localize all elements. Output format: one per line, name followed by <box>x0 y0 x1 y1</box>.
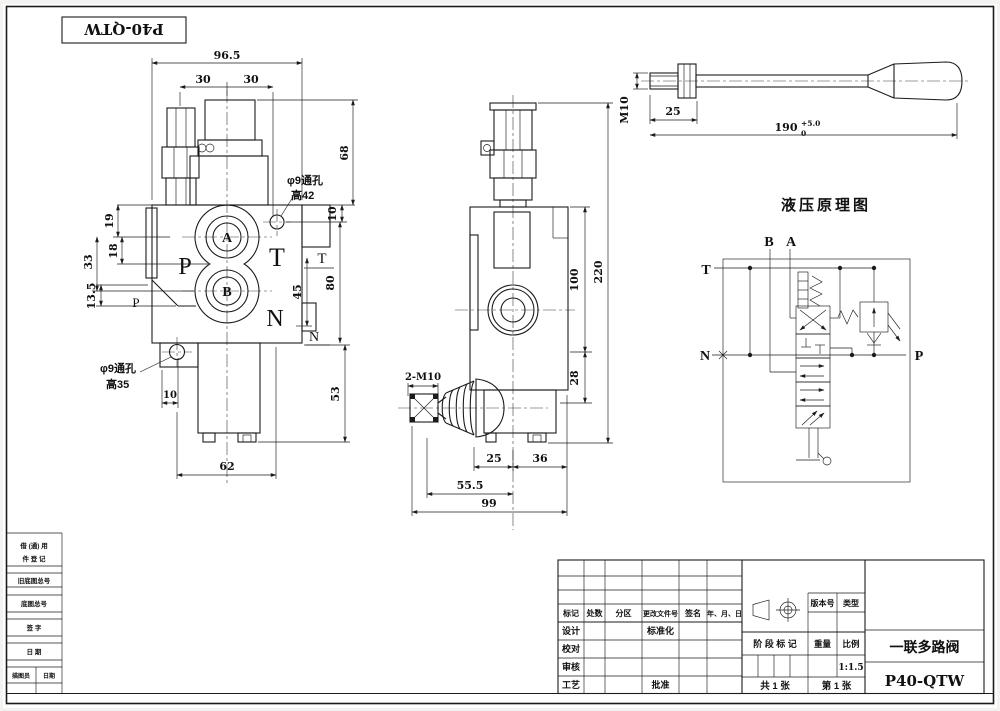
bb-date: 日 期 <box>27 647 42 656</box>
product-name: 一联多路阀 <box>890 639 960 655</box>
dim-96-5: 96.5 <box>214 49 241 62</box>
row-design: 设计 <box>562 625 580 636</box>
label-stage-mark: 阶 段 标 记 <box>753 638 797 649</box>
dim-190-tol-lower: 0 <box>801 129 806 138</box>
dim-handle-25: 25 <box>665 105 680 118</box>
dim-13-5: 13.5 <box>85 283 98 310</box>
dim-19: 19 <box>103 213 116 228</box>
th-zone: 分区 <box>616 608 632 618</box>
dim-10-bottom: 10 <box>163 390 177 401</box>
dim-68: 68 <box>338 145 351 161</box>
th-count: 处数 <box>586 608 604 618</box>
label-sheet-no: 第 1 张 <box>822 680 852 692</box>
row-audit: 审核 <box>562 661 580 672</box>
dim-30-left: 30 <box>195 73 211 86</box>
th-date: 年、月、日 <box>707 609 742 618</box>
dim-33: 33 <box>82 254 95 269</box>
bb-master-no: 底图总号 <box>21 599 48 608</box>
port-n-label: N <box>309 330 319 345</box>
schematic-port-a: A <box>786 235 797 250</box>
note-phi9-top: φ9通孔 <box>287 174 323 187</box>
label-weight: 重量 <box>814 639 832 649</box>
bb-old-master-no: 旧底图总号 <box>18 576 51 585</box>
dim-99: 99 <box>481 497 496 510</box>
row-standard: 标准化 <box>646 625 674 636</box>
bb-signature: 签 字 <box>26 623 42 632</box>
port-a-label: A <box>222 231 233 246</box>
port-p-label: P <box>132 295 139 310</box>
row-process: 工艺 <box>562 679 580 690</box>
label-sheets-total: 共 1 张 <box>760 680 790 692</box>
note-height42: 高42 <box>291 188 314 202</box>
bb-tracer: 描图员 <box>12 672 30 680</box>
dim-220: 220 <box>592 260 605 283</box>
schematic-port-b: B <box>764 235 773 250</box>
label-2-m10: 2-M10 <box>405 372 441 383</box>
bb-row1-line1: 借 (通) 用 <box>19 541 47 550</box>
product-model: P40-QTW <box>885 672 966 690</box>
schematic-title: 液压原理图 <box>781 196 871 214</box>
label-type: 类型 <box>843 598 859 608</box>
drawing-sheet: { "colors": {"ink": "#1b1b1b", "paper": … <box>0 0 1000 711</box>
code-box-text: P40-QTW <box>83 20 164 38</box>
dim-55-5: 55.5 <box>457 479 484 492</box>
dim-190-tol-upper: +5.0 <box>801 119 820 128</box>
cast-letter-t: T <box>269 243 285 272</box>
port-b-label: B <box>222 285 231 300</box>
th-sign: 签名 <box>684 608 701 618</box>
schematic-port-t: T <box>701 263 711 278</box>
cast-letter-p: P <box>178 254 191 280</box>
dim-36: 36 <box>532 452 548 465</box>
row-proof: 校对 <box>562 643 580 654</box>
dim-45: 45 <box>291 284 304 299</box>
schematic-port-n: N <box>700 349 710 364</box>
dim-10-right: 10 <box>326 206 339 222</box>
dim-62: 62 <box>219 460 234 473</box>
row-approve: 批准 <box>651 679 669 690</box>
th-doc-no: 更改文件号 <box>643 609 678 618</box>
port-t-label: T <box>317 251 326 267</box>
dim-100: 100 <box>568 268 581 291</box>
dim-80: 80 <box>324 275 337 291</box>
dim-30-right: 30 <box>243 73 259 86</box>
cast-letter-n: N <box>266 306 283 332</box>
label-version: 版本号 <box>810 598 835 608</box>
note-height35: 高35 <box>106 377 129 391</box>
dim-28: 28 <box>568 370 581 386</box>
schematic-port-p: P <box>915 349 924 364</box>
dim-18: 18 <box>107 243 120 259</box>
label-scale: 比例 <box>842 639 860 649</box>
dim-handle-190: 190 <box>775 121 798 134</box>
dim-25: 25 <box>486 452 501 465</box>
value-scale: 1:1.5 <box>838 663 863 673</box>
dim-handle-m10: M10 <box>618 96 631 124</box>
bb-row1-line2: 件 登 记 <box>22 554 46 563</box>
th-mark: 标记 <box>562 608 579 618</box>
note-phi9-bottom: φ9通孔 <box>100 362 136 375</box>
dim-53: 53 <box>329 386 342 401</box>
bb-tracer-date: 日期 <box>43 672 55 680</box>
